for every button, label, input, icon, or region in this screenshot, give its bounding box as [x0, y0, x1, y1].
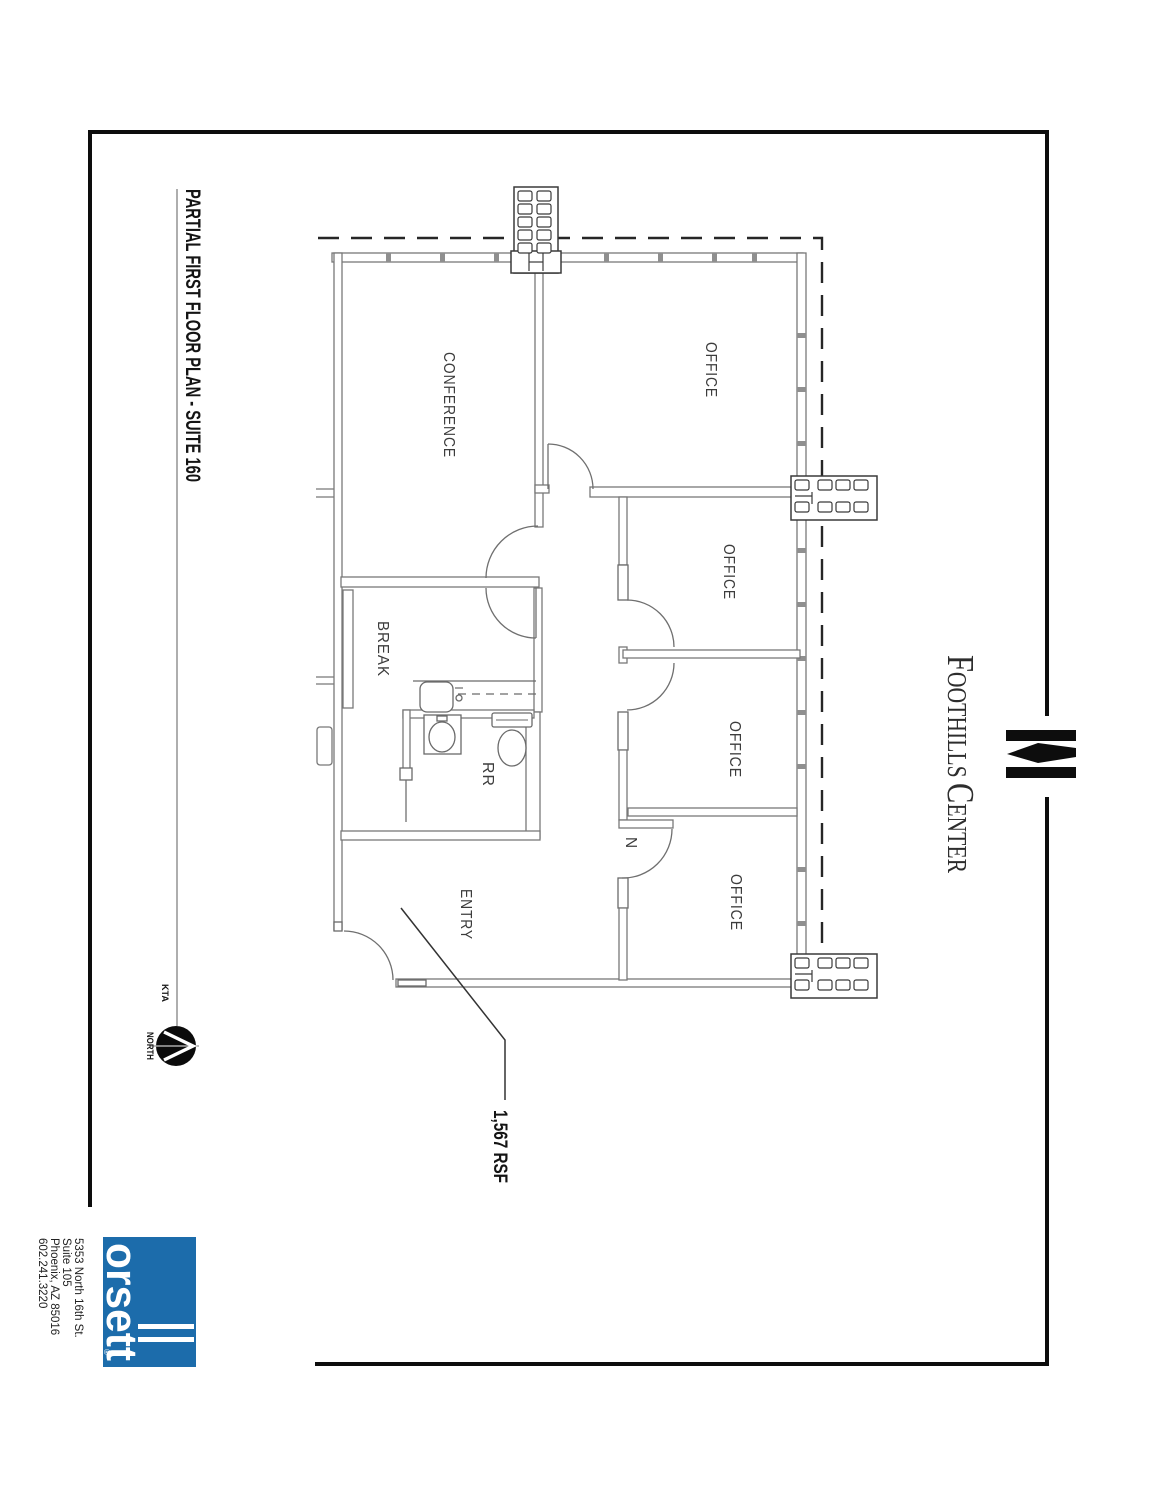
office2-office3-wall	[623, 650, 800, 658]
office1-door	[548, 444, 593, 489]
office3-sidelite	[618, 712, 628, 750]
column-top	[511, 187, 561, 273]
address-line-2: Suite 105	[60, 1238, 72, 1287]
conference-south-wall	[341, 577, 539, 587]
faucet	[456, 695, 462, 701]
break-pilaster	[343, 590, 353, 708]
plan-sheet: PARTIAL FIRST FLOOR PLAN - SUITE 160 KTA…	[0, 0, 1159, 1500]
interior-walls	[341, 262, 800, 980]
room-label-office-4: OFFICE	[727, 874, 744, 931]
registered-mark: ®	[102, 1349, 111, 1355]
orsett-logo: orsett ®	[97, 1237, 196, 1367]
page-border	[90, 132, 1047, 1364]
column-bottom-right	[791, 954, 877, 998]
property-logo-mark	[1006, 730, 1076, 778]
office3-door	[627, 663, 674, 710]
room-label-office-2: OFFICE	[720, 544, 737, 600]
room-label-break: BREAK	[374, 621, 391, 677]
property-name: FOOTHILLS CENTER	[939, 655, 981, 873]
leader-line	[401, 908, 505, 1100]
office4-sidelite	[618, 878, 628, 908]
logo-wordmark: orsett	[97, 1243, 146, 1361]
title-block: PARTIAL FIRST FLOOR PLAN - SUITE 160 KTA…	[145, 189, 204, 1066]
restroom-fixtures	[424, 713, 532, 766]
break-counter	[413, 681, 536, 712]
entry-north-wall	[341, 831, 540, 840]
room-label-restroom: RR	[479, 762, 496, 787]
north-label: NORTH	[145, 1032, 155, 1060]
room-label-conference: CONFERENCE	[440, 352, 457, 458]
floor-plan: CONFERENCE OFFICE OFFICE OFFICE OFFICE B…	[316, 187, 877, 1183]
restroom-sink	[429, 722, 455, 752]
north-arrow-icon: NORTH	[145, 1026, 199, 1066]
plumbing-wall	[526, 712, 540, 838]
address-line-3: Phoenix, AZ 85016	[48, 1238, 60, 1335]
firm-initials: KTA	[160, 984, 170, 1002]
address-line-1: 5353 North 16th St.	[72, 1238, 84, 1338]
lease-line	[318, 238, 822, 953]
break-room-door	[486, 588, 536, 638]
exterior-fins	[316, 489, 334, 765]
kitchen-sink	[420, 682, 453, 712]
room-label-office-3: OFFICE	[726, 721, 743, 778]
area-callout: 1,567 RSF	[401, 908, 510, 1183]
office3-office4-wall	[628, 808, 797, 816]
room-labels: CONFERENCE OFFICE OFFICE OFFICE OFFICE B…	[374, 342, 744, 940]
area-label: 1,567 RSF	[489, 1110, 510, 1183]
property-brand: FOOTHILLS CENTER	[939, 655, 1076, 873]
room-label-office-1: OFFICE	[702, 342, 719, 398]
entry-sidelite	[398, 980, 426, 986]
address-line-4: 602.241.3220	[36, 1238, 48, 1308]
page-title: PARTIAL FIRST FLOOR PLAN - SUITE 160	[181, 189, 204, 482]
room-label-entry: ENTRY	[457, 889, 474, 940]
suite-entry-door	[334, 922, 393, 980]
address-block: 5353 North 16th St. Suite 105 Phoenix, A…	[36, 1238, 84, 1338]
door-tag-n: N	[622, 837, 639, 849]
office2-sidelite	[618, 565, 628, 600]
conference-door	[486, 526, 538, 578]
office2-door	[627, 600, 674, 647]
office1-office2-wall	[590, 487, 800, 497]
column-right-middle	[791, 476, 877, 520]
